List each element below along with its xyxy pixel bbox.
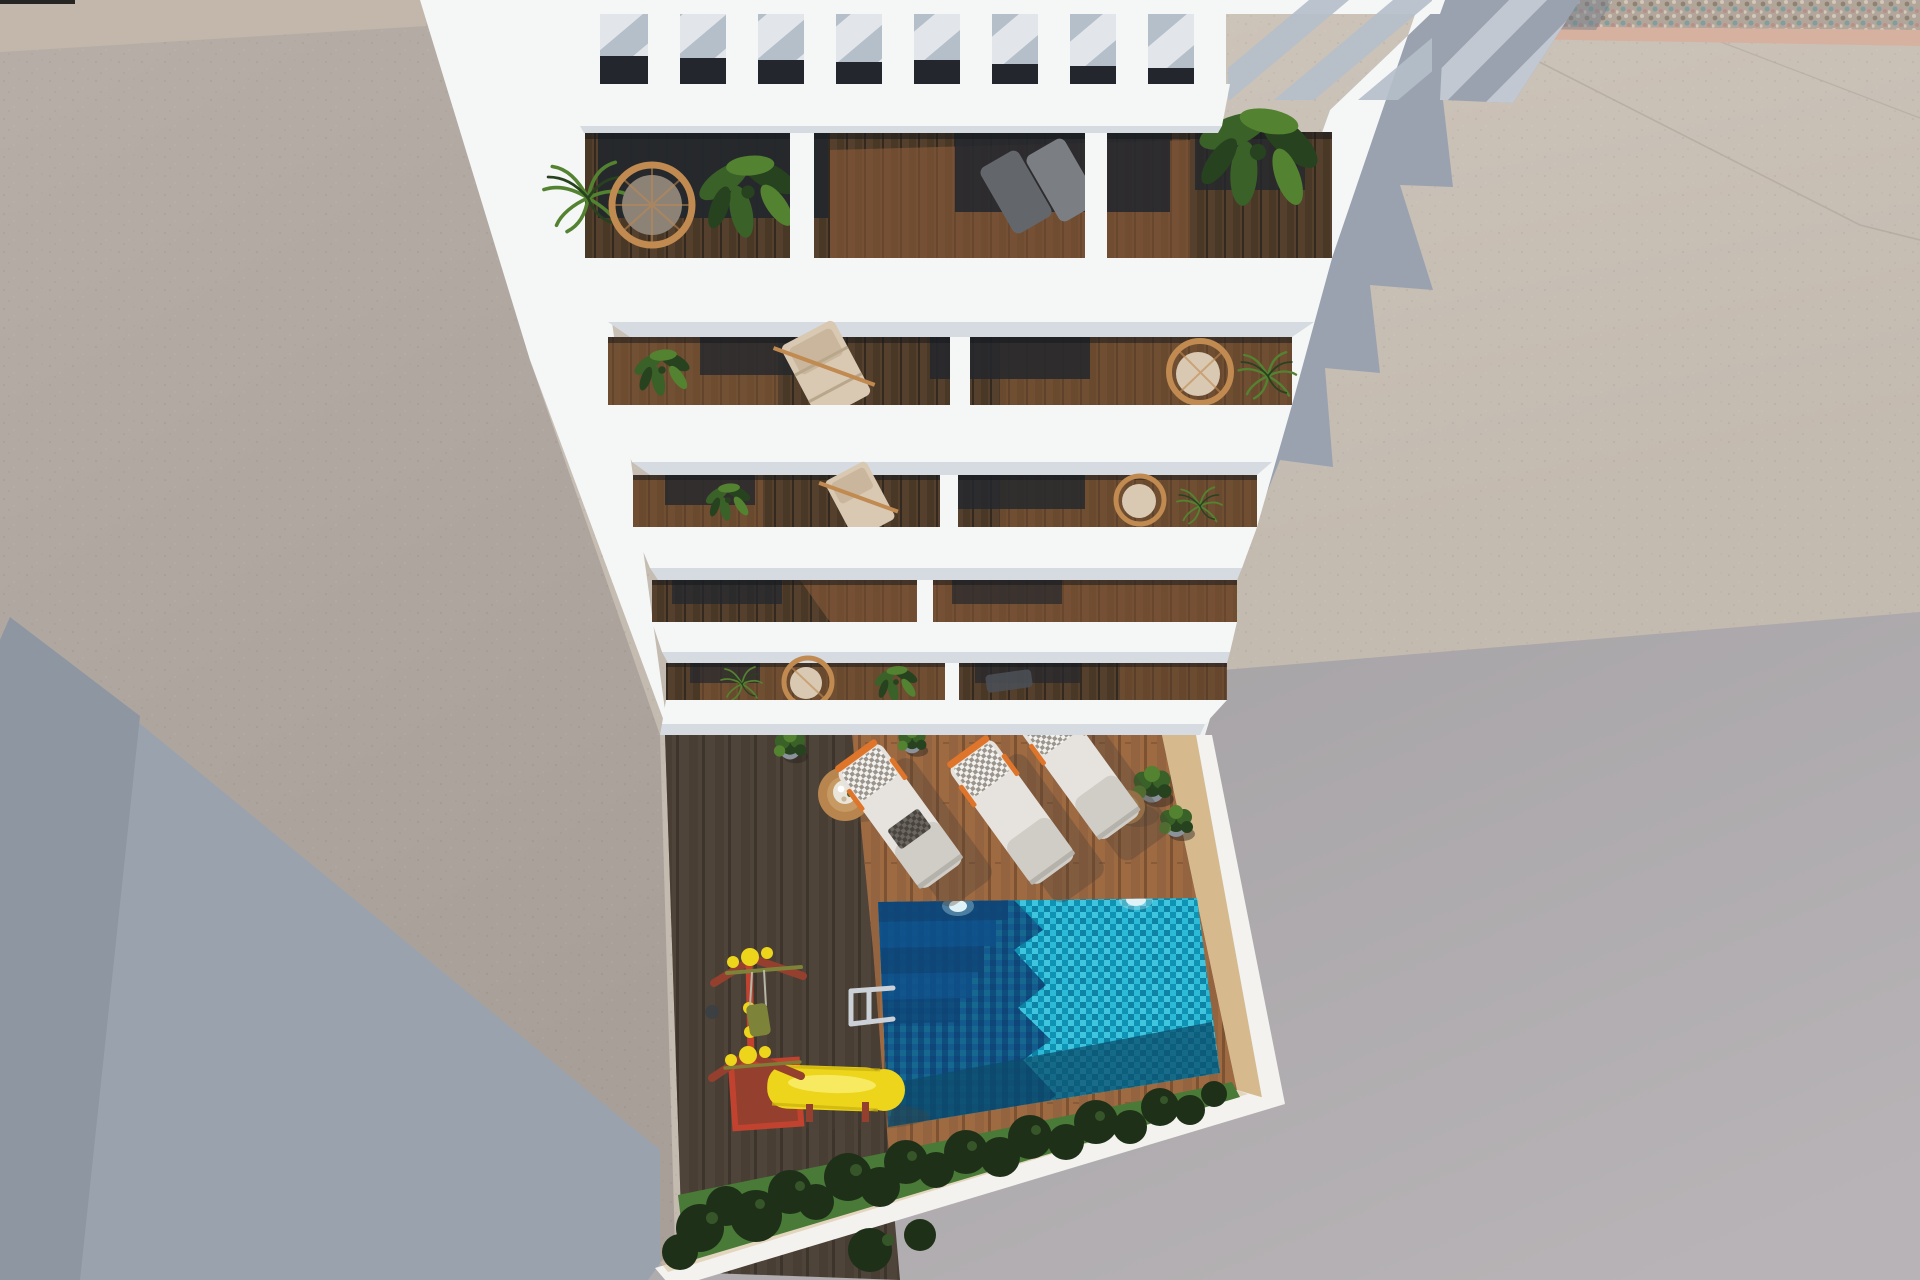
render-scene [0,0,1920,1280]
deck-drain [705,1005,719,1019]
balcony-divider [917,580,933,622]
balcony-floor-4 [652,580,1237,622]
balcony-divider [790,132,814,258]
balcony-divider [945,663,959,700]
balcony-divider [950,337,970,405]
balcony-divider [940,475,958,527]
slab-1 [585,258,1332,322]
slab-4 [652,622,1237,652]
window-dark [945,475,1085,509]
slab-5 [662,700,1227,724]
architectural-render [0,0,1920,1280]
pergola-front-band [570,84,1230,126]
balcony-floor-5 [666,658,1227,706]
balcony-divider [1085,132,1107,258]
slab-2 [608,405,1292,462]
slab-3 [633,527,1257,568]
round-wicker-chair [612,165,692,245]
